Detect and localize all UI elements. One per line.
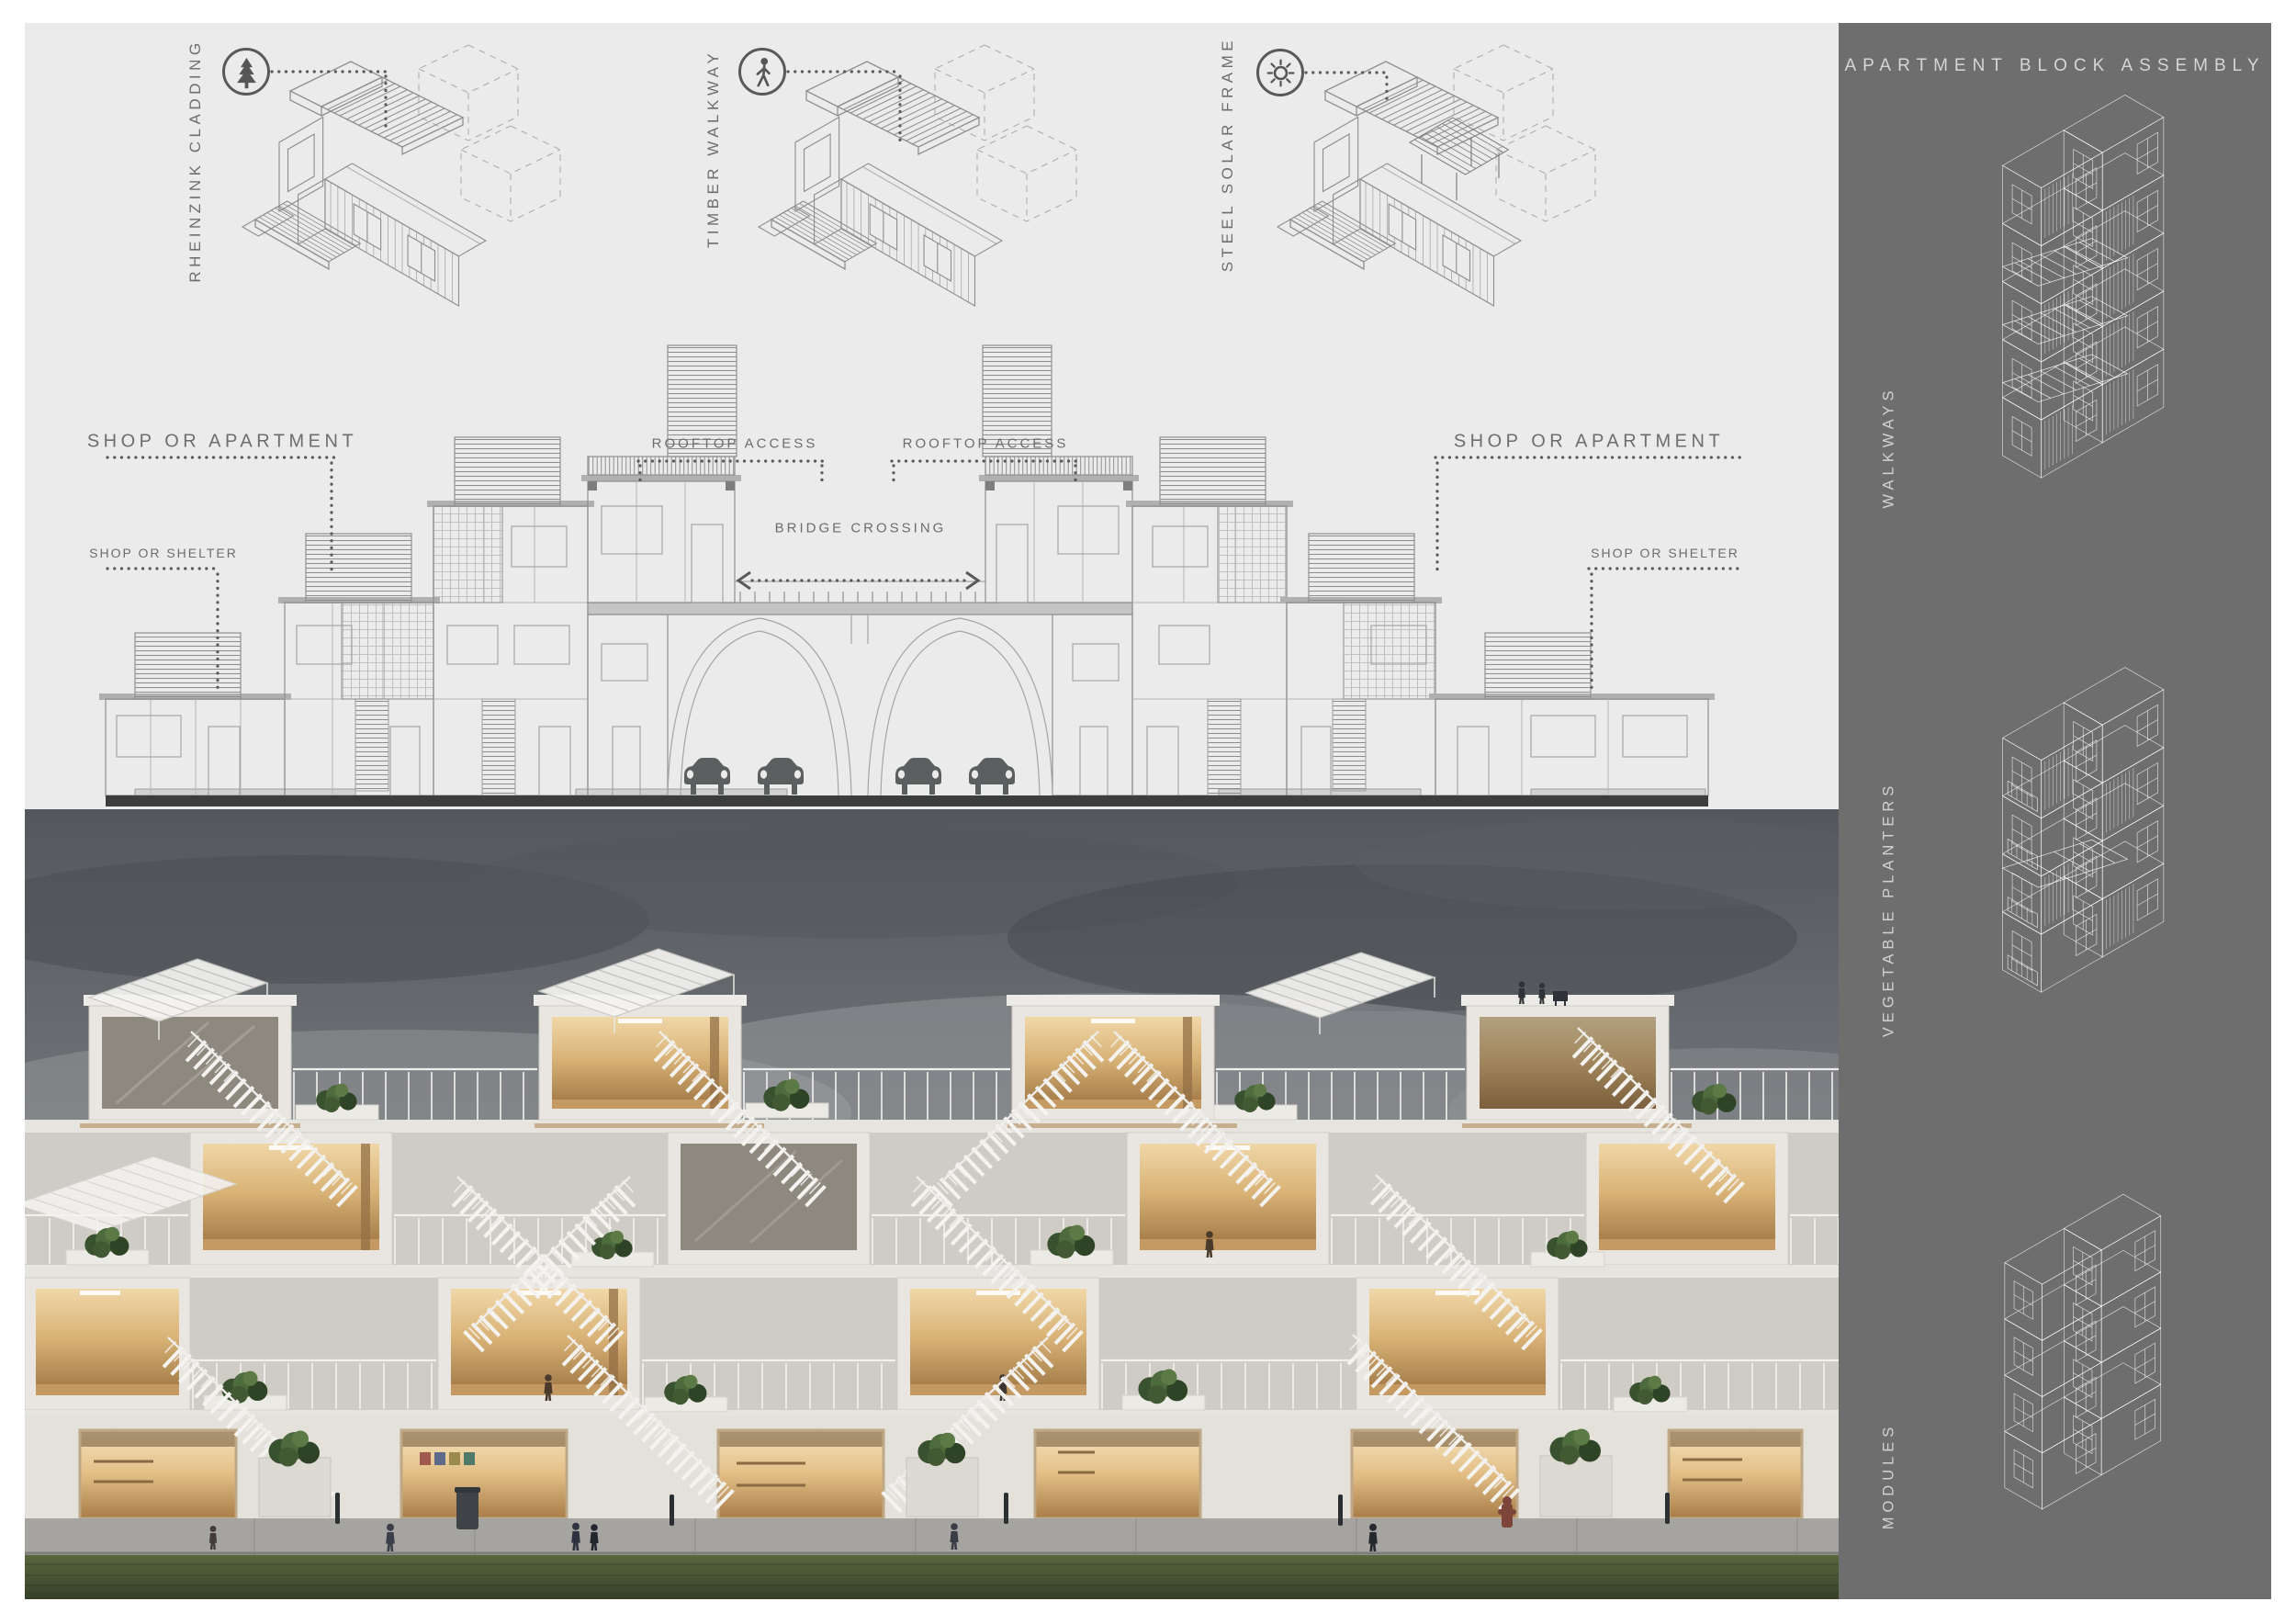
assembly-figure-vegetable-planters (1915, 602, 2227, 1033)
presentation-board: RHEINZINK CLADDING TIMBER WALKWAY STEEL … (0, 0, 2296, 1624)
label-rooftop-access-left: ROOFTOP ACCESS (652, 436, 818, 452)
building-photo (25, 809, 1839, 1599)
section-elevation-drawing (25, 295, 1839, 809)
diagram-label-timber-walkway: TIMBER WALKWAY (704, 50, 723, 248)
iso-diagram-rheinzink (237, 32, 568, 317)
diagram-panel: RHEINZINK CLADDING TIMBER WALKWAY STEEL … (25, 23, 1839, 809)
assembly-sidebar: APARTMENT BLOCK ASSEMBLY (1839, 23, 2271, 1599)
diagram-label-rheinzink-cladding: RHEINZINK CLADDING (186, 39, 205, 282)
label-shop-or-shelter-left: SHOP OR SHELTER (89, 546, 238, 560)
label-rooftop-access-right: ROOFTOP ACCESS (903, 436, 1069, 452)
iso-diagram-timber-walkway (753, 32, 1084, 317)
label-shop-or-apartment-left: SHOP OR APARTMENT (87, 432, 357, 453)
diagram-label-steel-solar-frame: STEEL SOLAR FRAME (1219, 37, 1237, 272)
assembly-figure-walkways (1915, 87, 2227, 519)
render-scene (25, 809, 1839, 1599)
sidebar-label-modules: MODULES (1881, 1423, 1898, 1530)
sidewalk (25, 1518, 1839, 1555)
sidebar-title: APARTMENT BLOCK ASSEMBLY (1839, 56, 2271, 76)
label-bridge-crossing: BRIDGE CROSSING (775, 521, 947, 536)
assembly-figure-modules (1919, 1134, 2223, 1552)
sidebar-label-vegetable-planters: VEGETABLE PLANTERS (1881, 782, 1898, 1038)
iso-diagram-steel-solar (1272, 32, 1603, 317)
sidebar-label-walkways: WALKWAYS (1881, 387, 1898, 509)
label-shop-or-apartment-right: SHOP OR APARTMENT (1454, 432, 1724, 453)
label-shop-or-shelter-right: SHOP OR SHELTER (1591, 546, 1739, 560)
lawn (25, 1555, 1839, 1599)
